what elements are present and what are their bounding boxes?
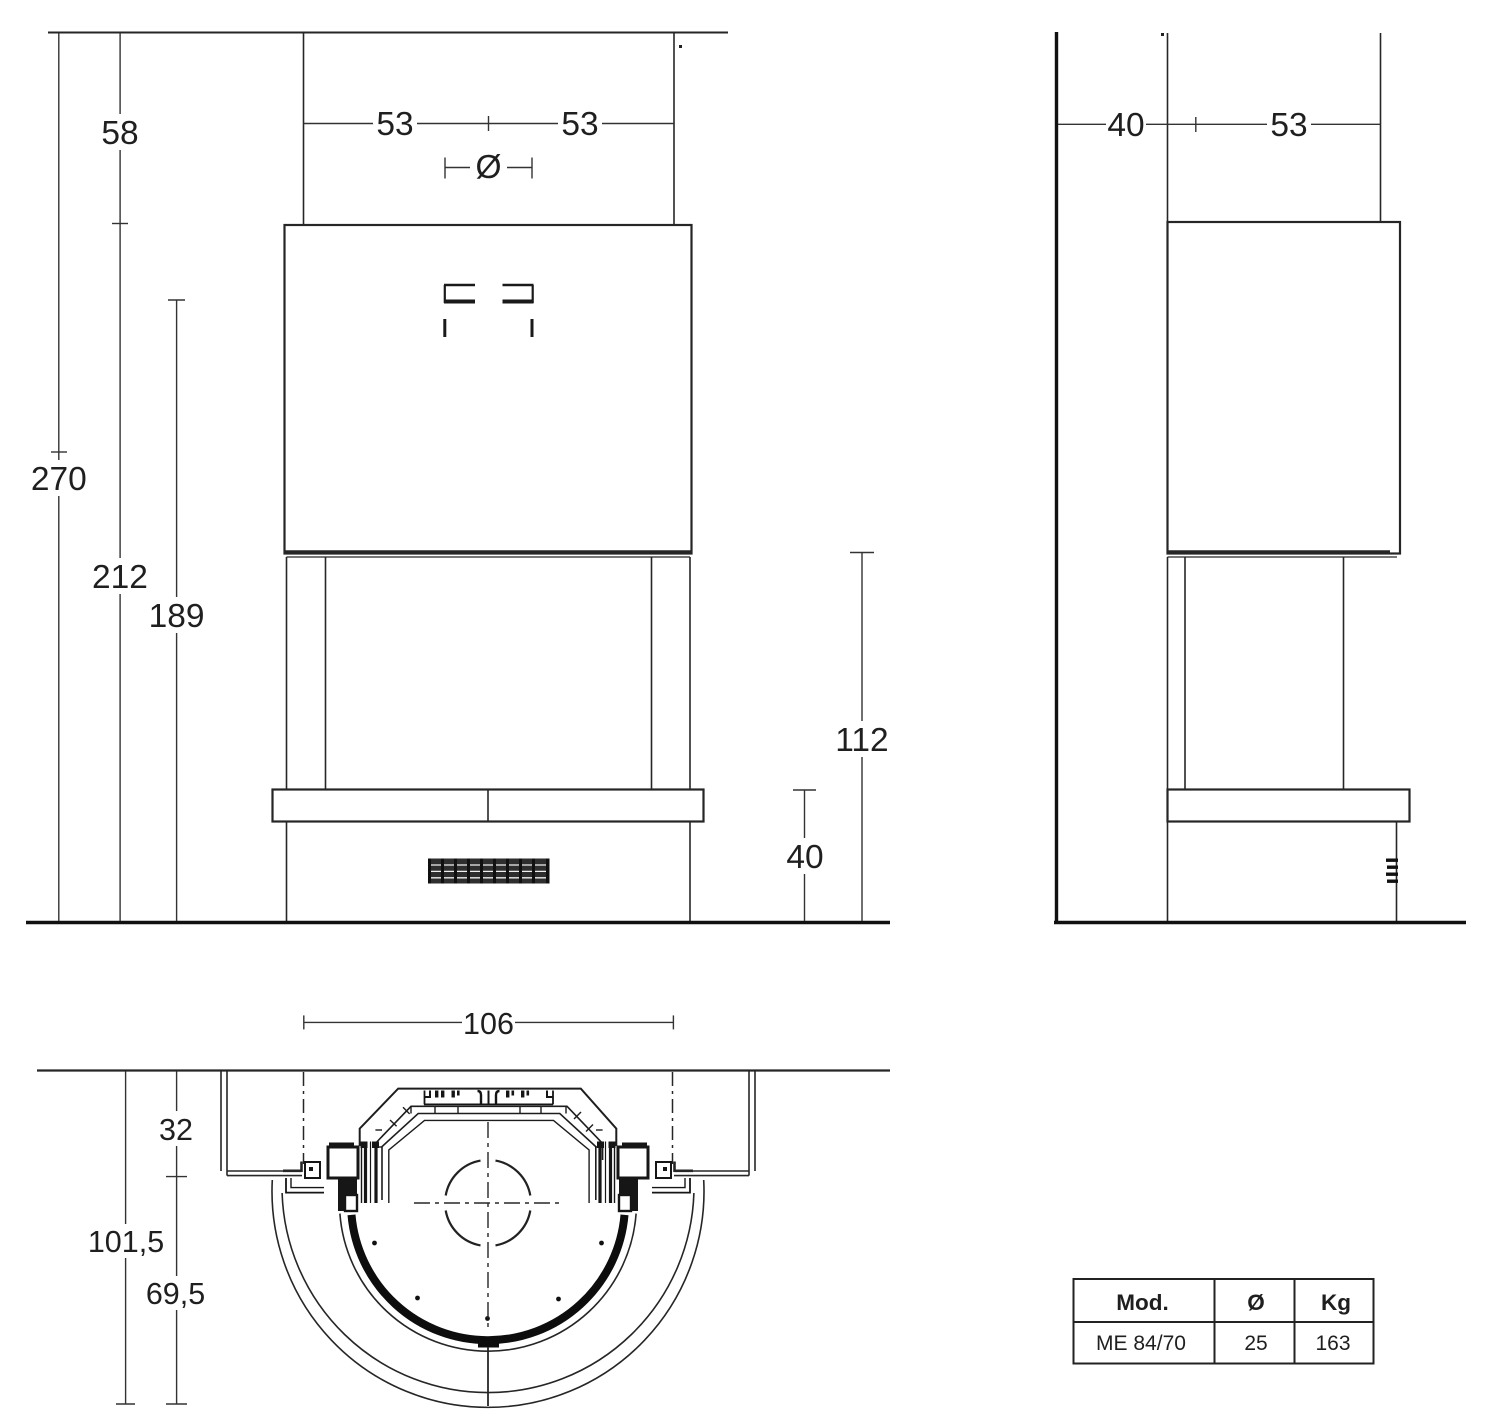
svg-text:40: 40 [1107,107,1144,144]
svg-text:53: 53 [1270,107,1307,144]
svg-text:189: 189 [149,598,205,635]
svg-text:Ø: Ø [1247,1290,1265,1315]
svg-text:53: 53 [376,106,413,143]
svg-text:163: 163 [1315,1332,1350,1355]
svg-text:212: 212 [92,559,148,596]
svg-text:25: 25 [1244,1332,1267,1355]
svg-text:Mod.: Mod. [1116,1290,1168,1315]
svg-text:69,5: 69,5 [146,1277,205,1311]
svg-text:32: 32 [159,1113,193,1147]
svg-text:Ø: Ø [475,149,501,186]
svg-text:58: 58 [101,115,138,152]
svg-text:101,5: 101,5 [88,1225,164,1259]
svg-text:ME 84/70: ME 84/70 [1096,1332,1186,1355]
svg-text:106: 106 [463,1007,514,1041]
svg-text:112: 112 [835,722,888,759]
svg-text:Kg: Kg [1321,1290,1351,1315]
svg-text:270: 270 [31,461,87,498]
svg-text:53: 53 [561,106,598,143]
svg-text:40: 40 [786,839,823,876]
